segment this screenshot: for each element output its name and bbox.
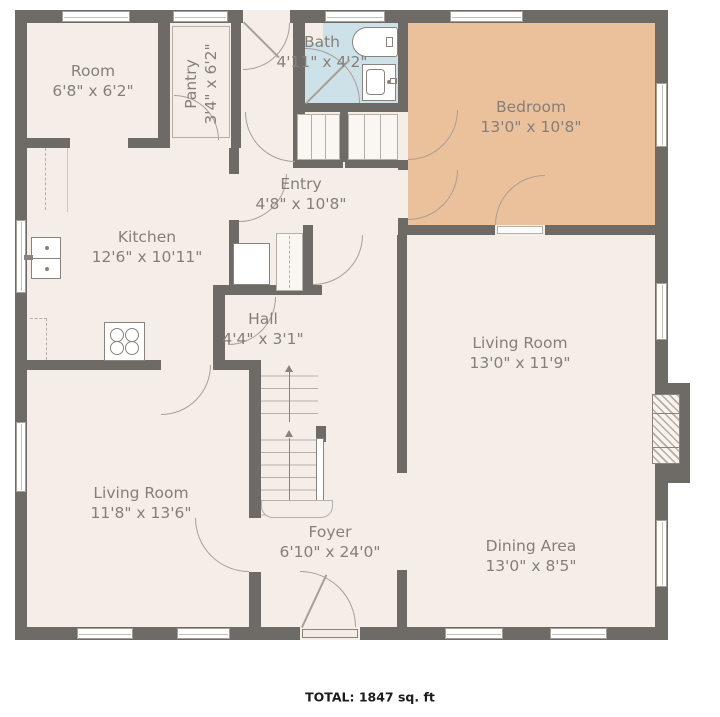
- wall: [398, 10, 408, 110]
- wall: [158, 10, 170, 148]
- closet: [348, 114, 398, 160]
- room-dims: 4'8" x 10'8": [255, 194, 346, 214]
- stairs-up-arrow-head: [285, 430, 293, 437]
- burner: [125, 341, 139, 355]
- room-dims: 12'6" x 10'11": [92, 247, 203, 267]
- room-name: Living Room: [91, 483, 192, 503]
- wall: [545, 225, 655, 235]
- room-dims: 3'4" x 6'2": [201, 43, 221, 124]
- counter-dashed-line: [45, 148, 46, 210]
- kitchen-faucet: [24, 255, 33, 260]
- room-dims: 13'0" x 11'9": [470, 353, 571, 373]
- room-dims: 6'10" x 24'0": [280, 542, 381, 562]
- stair-landing: [261, 500, 333, 518]
- room-label-kitchen: Kitchen 12'6" x 10'11": [92, 227, 203, 267]
- wall: [249, 572, 261, 627]
- wall: [15, 10, 27, 640]
- sink-divider: [32, 258, 60, 259]
- wall: [397, 235, 407, 473]
- wall: [340, 112, 348, 162]
- room-label-living-room-left: Living Room 11'8" x 13'6": [91, 483, 192, 523]
- wall: [15, 360, 161, 370]
- burner: [110, 341, 124, 355]
- room-dims: 4'11" x 4'2": [276, 52, 367, 72]
- room-name: Room: [52, 61, 133, 81]
- room-name: Dining Area: [485, 536, 576, 556]
- wall: [231, 10, 241, 148]
- sink-drain-dot: [45, 246, 49, 250]
- window: [77, 628, 133, 639]
- room-name: Living Room: [470, 333, 571, 353]
- closet-door-line: [380, 115, 381, 159]
- wall: [249, 363, 261, 518]
- refrigerator-icon: [233, 243, 270, 285]
- stairs-up-arrow-icon: [289, 372, 290, 422]
- window: [62, 11, 130, 22]
- stove-icon: [104, 322, 145, 361]
- room-label-bedroom: Bedroom 13'0" x 10'8": [481, 97, 582, 137]
- counter-line: [67, 148, 68, 212]
- fireplace-icon: [652, 394, 680, 464]
- room-name: Bath: [276, 32, 367, 52]
- window: [656, 283, 667, 340]
- stairs-up-arrow-head: [285, 365, 293, 372]
- room-dims: 11'8" x 13'6": [91, 503, 192, 523]
- front-door-slab: [302, 629, 358, 638]
- wall: [229, 148, 239, 174]
- sink-handle: [390, 78, 397, 84]
- burner: [110, 328, 124, 342]
- fireplace-divider: [653, 413, 679, 414]
- closet-door-line: [325, 115, 326, 159]
- wall: [345, 160, 401, 168]
- room-label-entry: Entry 4'8" x 10'8": [255, 174, 346, 214]
- wall: [293, 103, 408, 112]
- stair-handrail: [316, 438, 324, 508]
- room-name: Foyer: [280, 522, 381, 542]
- wall: [397, 570, 407, 628]
- window: [445, 628, 503, 639]
- room-name: Entry: [255, 174, 346, 194]
- room-label-hall: Hall 4'4" x 3'1": [222, 309, 303, 349]
- burner: [125, 328, 139, 342]
- room-label-dining-area: Dining Area 13'0" x 8'5": [485, 536, 576, 576]
- room-dims: 13'0" x 10'8": [481, 117, 582, 137]
- room-label-foyer: Foyer 6'10" x 24'0": [280, 522, 381, 562]
- sink-drain-dot: [45, 267, 49, 271]
- room-label-room: Room 6'8" x 6'2": [52, 61, 133, 101]
- wall: [15, 138, 70, 148]
- room-dims: 13'0" x 8'5": [485, 556, 576, 576]
- window: [450, 11, 523, 22]
- sink-bowl: [366, 69, 385, 95]
- kitchen-sink-icon: [31, 237, 61, 279]
- wall: [398, 160, 408, 170]
- window: [177, 628, 230, 639]
- fireplace-divider: [653, 447, 679, 448]
- total-area-label: TOTAL: 1847 sq. ft: [305, 690, 435, 705]
- room-name: Bedroom: [481, 97, 582, 117]
- wall: [303, 225, 313, 285]
- door-opening: [243, 10, 290, 23]
- room-name: Pantry: [181, 43, 201, 124]
- bedroom-door-slab: [497, 226, 543, 234]
- room-name: Hall: [222, 309, 303, 329]
- window: [16, 422, 26, 492]
- room-dims: 6'8" x 6'2": [52, 81, 133, 101]
- window: [656, 83, 667, 147]
- room-name: Kitchen: [92, 227, 203, 247]
- room-label-bath: Bath 4'11" x 4'2": [276, 32, 367, 72]
- closet: [297, 114, 340, 160]
- entry-closet-dashed-line: [289, 236, 290, 288]
- closet-door-line: [311, 115, 312, 159]
- wall: [128, 138, 170, 148]
- room-label-living-room-right: Living Room 13'0" x 11'9": [470, 333, 571, 373]
- room-label-pantry: Pantry 3'4" x 6'2": [181, 43, 221, 124]
- room-dims: 4'4" x 3'1": [222, 329, 303, 349]
- wall: [293, 160, 343, 168]
- counter-dashed-corner: [30, 318, 47, 360]
- window: [656, 520, 667, 587]
- window: [550, 628, 607, 639]
- floor-plan: Room 6'8" x 6'2" Pantry 3'4" x 6'2" Bath…: [0, 0, 720, 717]
- closet-door-line: [364, 115, 365, 159]
- wall: [398, 225, 495, 235]
- window: [325, 11, 385, 22]
- window: [173, 11, 228, 22]
- wall: [213, 285, 322, 295]
- bathtub-tap: [386, 37, 393, 47]
